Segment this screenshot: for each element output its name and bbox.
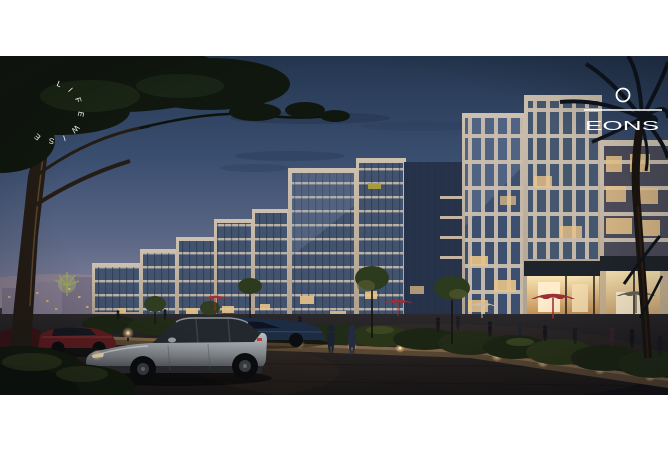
page-background: LIFEWISE EONS (0, 0, 668, 452)
scene-svg: LIFEWISE EONS (0, 56, 668, 395)
vignette (0, 56, 668, 395)
eons-logo-wordmark: EONS (585, 118, 660, 133)
architectural-render: LIFEWISE EONS (0, 56, 668, 395)
